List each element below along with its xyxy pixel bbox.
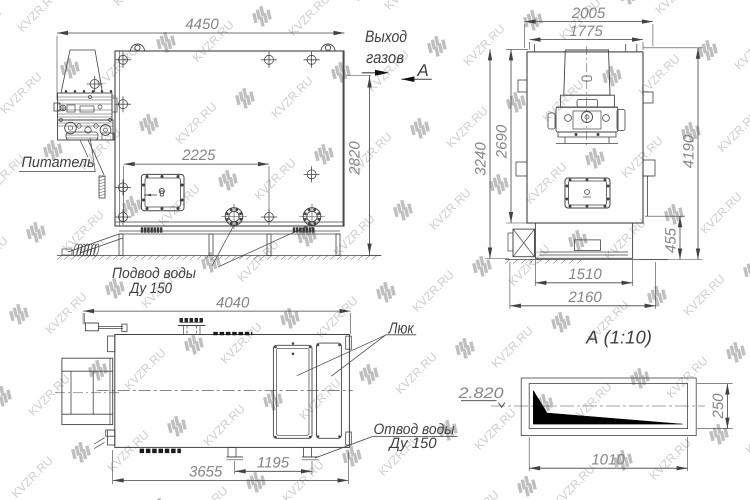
svg-text:KVZR.RU: KVZR.RU (184, 484, 231, 500)
svg-text:KVZR.RU: KVZR.RU (0, 70, 45, 117)
svg-text:1010: 1010 (591, 452, 625, 469)
svg-text:KVZR.RU: KVZR.RU (681, 272, 728, 319)
svg-text:3240: 3240 (473, 142, 490, 176)
svg-text:KVZR.RU: KVZR.RU (269, 74, 316, 121)
svg-text:KVZR.RU: KVZR.RU (410, 268, 457, 315)
svg-text:KVZR.RU: KVZR.RU (489, 324, 536, 371)
svg-text:KVZR.RU: KVZR.RU (698, 190, 745, 237)
svg-text:KVZR.RU: KVZR.RU (540, 78, 587, 125)
svg-text:KVZR.RU: KVZR.RU (60, 208, 107, 255)
svg-text:KVZR.RU: KVZR.RU (619, 134, 666, 181)
svg-text:KVZR.RU: KVZR.RU (111, 0, 158, 9)
svg-text:KVZR.RU: KVZR.RU (472, 406, 519, 453)
svg-text:KVZR.RU: KVZR.RU (235, 238, 282, 285)
svg-text:1775: 1775 (569, 23, 603, 40)
svg-text:KVZR.RU: KVZR.RU (105, 428, 152, 475)
svg-text:А (1:10): А (1:10) (585, 327, 652, 348)
svg-text:KVZR.RU: KVZR.RU (523, 160, 570, 207)
svg-text:KVZR.RU: KVZR.RU (382, 0, 429, 13)
svg-text:KVZR.RU: KVZR.RU (726, 492, 750, 500)
svg-text:KVZR.RU: KVZR.RU (0, 234, 11, 281)
svg-text:Ду 150: Ду 150 (128, 280, 172, 297)
svg-text:KVZR.RU: KVZR.RU (173, 100, 220, 147)
svg-text:KVZR.RU: KVZR.RU (653, 0, 700, 17)
svg-text:250: 250 (710, 393, 727, 420)
svg-text:4450: 4450 (185, 16, 219, 33)
svg-text:KVZR.RU: KVZR.RU (455, 488, 502, 500)
svg-text:Питатель: Питатель (22, 154, 95, 171)
svg-text:KVZR.RU: KVZR.RU (331, 212, 378, 259)
svg-text:1510: 1510 (568, 266, 602, 283)
svg-text:KVZR.RU: KVZR.RU (122, 346, 169, 393)
svg-text:2820: 2820 (347, 141, 364, 176)
svg-text:2690: 2690 (494, 124, 511, 159)
svg-text:KVZR.RU: KVZR.RU (43, 290, 90, 337)
svg-text:KVZR.RU: KVZR.RU (218, 320, 265, 367)
svg-text:KVZR.RU: KVZR.RU (393, 350, 440, 397)
svg-text:KVZR.RU: KVZR.RU (743, 410, 750, 457)
svg-text:2160: 2160 (567, 289, 602, 306)
svg-text:KVZR.RU: KVZR.RU (9, 454, 56, 500)
svg-text:KVZR.RU: KVZR.RU (15, 0, 62, 35)
svg-text:4040: 4040 (216, 295, 250, 312)
svg-text:KVZR.RU: KVZR.RU (647, 436, 694, 483)
svg-text:KVZR.RU: KVZR.RU (715, 108, 750, 155)
svg-text:KVZR.RU: KVZR.RU (201, 402, 248, 449)
svg-text:газов: газов (366, 49, 404, 67)
svg-text:2225: 2225 (181, 147, 216, 164)
svg-text:KVZR.RU: KVZR.RU (427, 186, 474, 233)
svg-text:1195: 1195 (257, 455, 290, 472)
svg-text:KVZR.RU: KVZR.RU (26, 372, 73, 419)
svg-text:KVZR.RU: KVZR.RU (297, 376, 344, 423)
svg-text:KVZR.RU: KVZR.RU (314, 294, 361, 341)
svg-text:4190: 4190 (681, 134, 698, 168)
svg-text:А: А (416, 61, 428, 80)
svg-text:3655: 3655 (189, 464, 223, 481)
svg-text:2.820: 2.820 (457, 385, 504, 402)
svg-text:KVZR.RU: KVZR.RU (461, 22, 508, 69)
svg-text:455: 455 (663, 227, 680, 253)
svg-text:KVZR.RU: KVZR.RU (732, 26, 750, 73)
svg-text:2005: 2005 (571, 5, 606, 22)
svg-text:Выход: Выход (365, 28, 407, 46)
svg-text:Ду 150: Ду 150 (388, 435, 438, 452)
svg-text:KVZR.RU: KVZR.RU (664, 354, 711, 401)
